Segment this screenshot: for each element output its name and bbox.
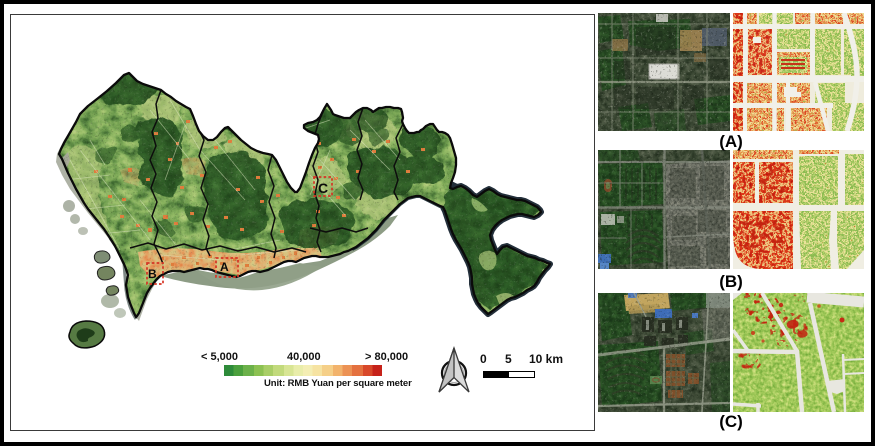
svg-text:A: A (220, 260, 229, 274)
svg-text:C: C (318, 180, 328, 196)
svg-text:B: B (148, 267, 157, 281)
